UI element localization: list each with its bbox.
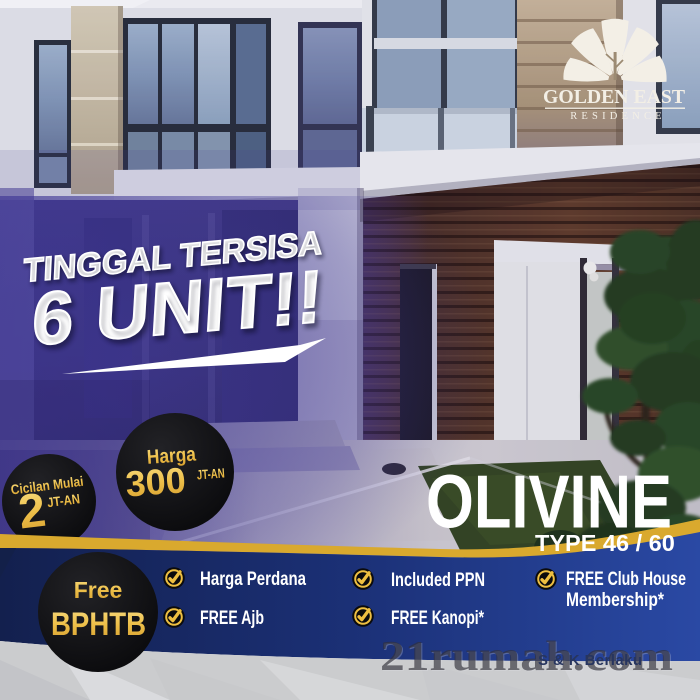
svg-text:S & K Berlaku: S & K Berlaku: [538, 652, 642, 669]
svg-text:TYPE 46 / 60: TYPE 46 / 60: [535, 530, 675, 556]
svg-text:300: 300: [124, 459, 187, 504]
svg-text:RESIDENCE: RESIDENCE: [570, 111, 666, 122]
svg-text:Harga Perdana: Harga Perdana: [200, 569, 306, 590]
svg-text:Included PPN: Included PPN: [391, 570, 485, 591]
svg-text:JT-AN: JT-AN: [196, 466, 225, 483]
svg-text:Membership*: Membership*: [566, 590, 664, 611]
svg-text:FREE Club House: FREE Club House: [566, 569, 686, 590]
svg-text:FREE Ajb: FREE Ajb: [200, 608, 264, 629]
svg-text:Free: Free: [74, 577, 123, 603]
svg-text:FREE Kanopi*: FREE Kanopi*: [391, 608, 484, 629]
svg-text:BPHTB: BPHTB: [51, 606, 146, 642]
svg-text:GOLDEN EAST: GOLDEN EAST: [543, 86, 686, 108]
